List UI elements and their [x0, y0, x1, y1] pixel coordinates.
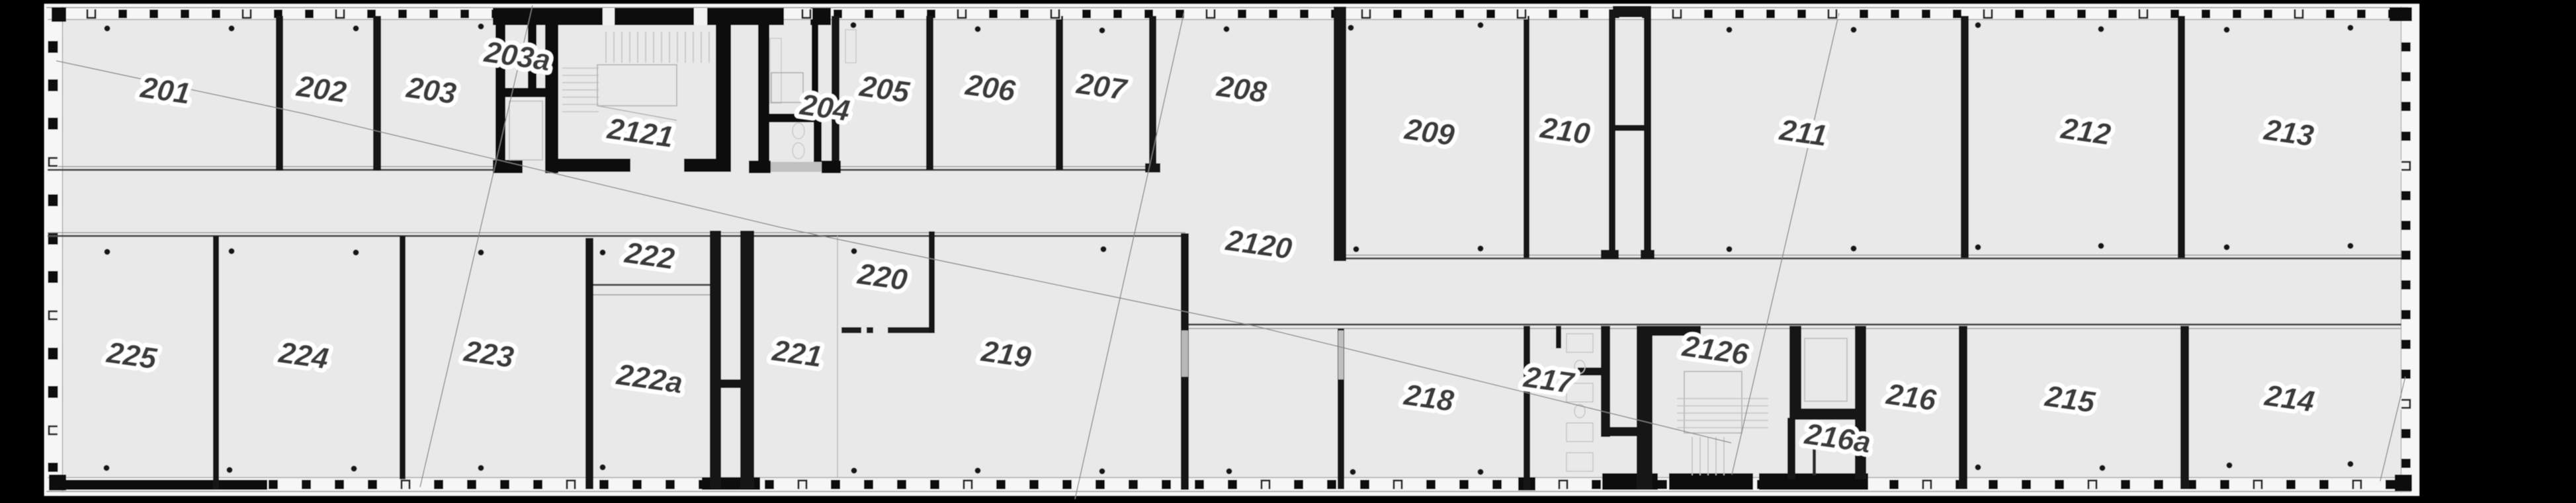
- svg-text:215: 215: [2042, 379, 2097, 419]
- svg-text:225: 225: [104, 335, 159, 375]
- svg-text:221: 221: [769, 333, 824, 373]
- svg-text:202: 202: [294, 69, 348, 109]
- svg-text:217: 217: [1521, 360, 1576, 400]
- svg-text:223: 223: [461, 334, 515, 374]
- svg-text:218: 218: [1401, 377, 1455, 418]
- svg-text:209: 209: [1402, 112, 1456, 152]
- svg-text:207: 207: [1074, 66, 1129, 106]
- svg-text:211: 211: [1777, 112, 1829, 153]
- svg-text:203: 203: [404, 70, 458, 110]
- svg-text:222: 222: [622, 235, 676, 276]
- svg-text:208: 208: [1214, 69, 1268, 109]
- svg-text:212: 212: [2058, 111, 2112, 151]
- svg-text:206: 206: [963, 67, 1017, 108]
- svg-text:220: 220: [855, 256, 909, 297]
- svg-text:213: 213: [2261, 112, 2315, 153]
- svg-text:201: 201: [138, 70, 192, 110]
- svg-text:219: 219: [978, 334, 1033, 374]
- svg-text:204: 204: [797, 87, 851, 128]
- svg-text:210: 210: [1537, 110, 1592, 151]
- svg-text:224: 224: [276, 335, 330, 375]
- svg-text:216: 216: [1883, 377, 1938, 417]
- svg-text:214: 214: [2262, 378, 2316, 418]
- svg-text:205: 205: [857, 69, 912, 109]
